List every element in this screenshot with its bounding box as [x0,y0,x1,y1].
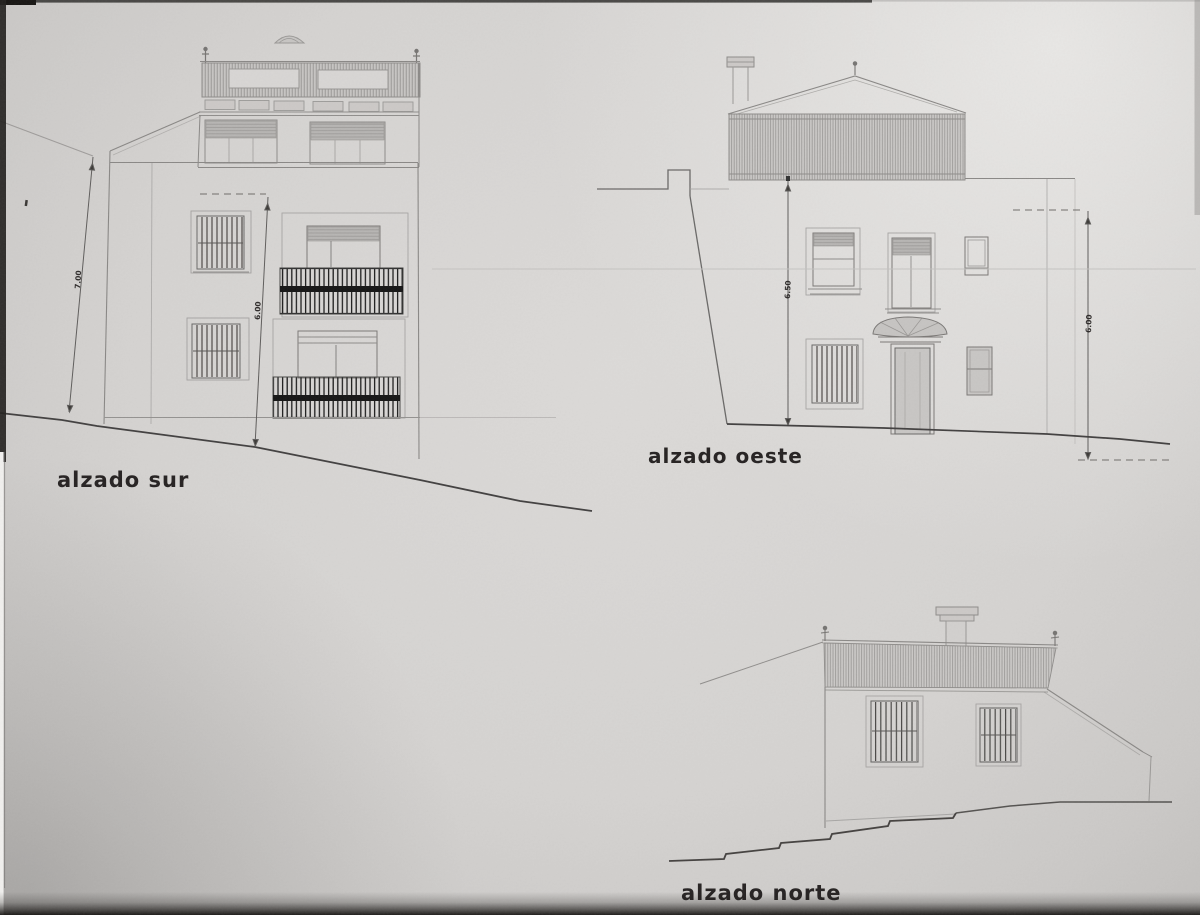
scan-grain-overlay [0,0,1200,915]
elevations-drawing: alzado sur alzado oeste alzado norte 7.0… [0,0,1200,915]
scanned-drawing-sheet: alzado sur alzado oeste alzado norte 7.0… [0,0,1200,915]
